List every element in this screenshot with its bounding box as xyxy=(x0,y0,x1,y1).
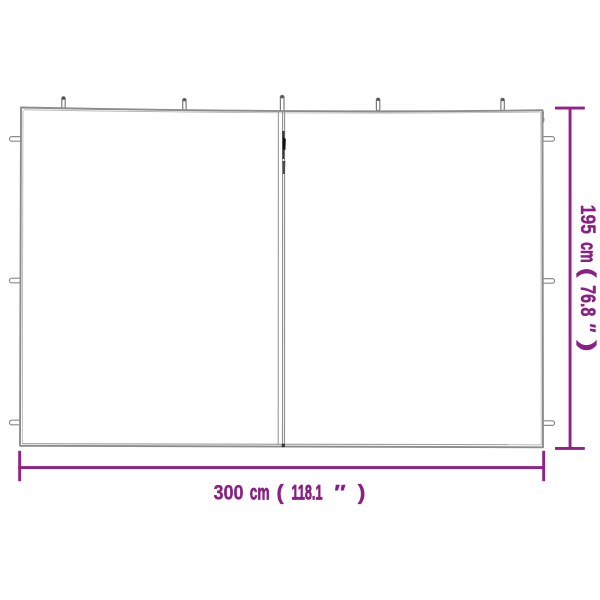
svg-text:): ) xyxy=(358,479,366,504)
svg-text:118.1: 118.1 xyxy=(292,479,323,504)
svg-text:300: 300 xyxy=(214,479,244,504)
svg-text:76.8: 76.8 xyxy=(576,285,600,316)
svg-text:): ) xyxy=(576,340,600,352)
svg-text:195: 195 xyxy=(576,205,600,234)
svg-text:cm: cm xyxy=(250,479,270,504)
svg-text:(: ( xyxy=(576,268,600,279)
svg-text:cm: cm xyxy=(576,242,600,263)
svg-text:″: ″ xyxy=(334,479,346,504)
svg-text:(: ( xyxy=(276,479,284,504)
svg-text:″: ″ xyxy=(576,324,600,333)
